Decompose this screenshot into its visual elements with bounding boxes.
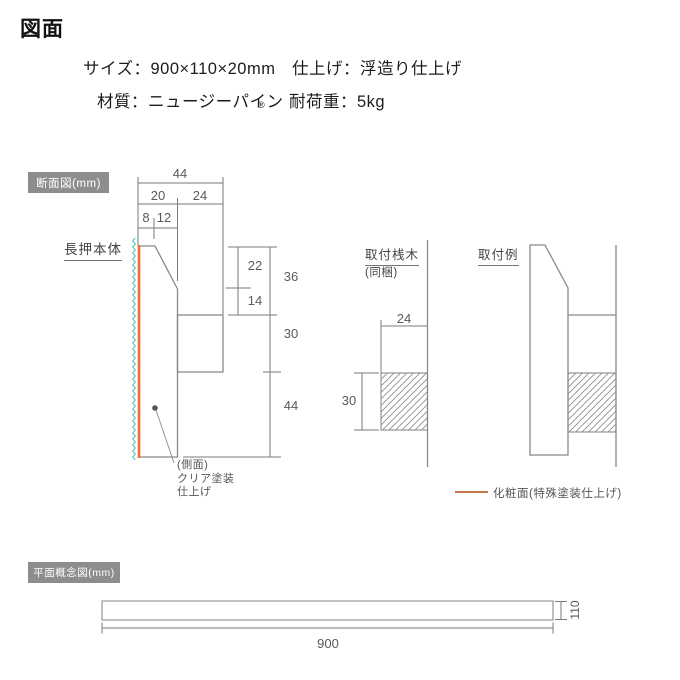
dim-lower: 44	[284, 398, 298, 413]
plan-board-outline	[102, 601, 553, 620]
batten-height-dim: 30	[342, 393, 356, 408]
batten-width-dim: 24	[397, 311, 411, 326]
side-note-line2: クリア塗装	[177, 473, 235, 487]
side-note-line3: 仕上げ	[177, 486, 235, 500]
example-batten-hatched	[568, 373, 616, 432]
example-rail-profile	[530, 245, 568, 455]
cross-section-batten-recess	[178, 315, 224, 372]
side-note-line1: (側面)	[177, 459, 235, 473]
plan-view-diagram	[102, 601, 567, 634]
section-label-plan-view: 平面概念図(mm)	[28, 562, 120, 583]
batten-included-label: (同梱)	[365, 264, 398, 280]
side-note-leader-line	[156, 410, 174, 463]
dim-front-depth: 20	[151, 188, 165, 203]
dim-upper-straight: 14	[248, 293, 262, 308]
spec-finish: 仕上げ：浮造り仕上げ	[292, 55, 462, 79]
side-face-wavy-line	[133, 238, 136, 460]
cross-section-profile	[139, 246, 223, 457]
installation-example-label: 取付例	[478, 244, 519, 266]
plan-width-dim: 110	[568, 600, 582, 619]
batten-label: 取付桟木	[365, 244, 419, 266]
dim-upper-chamfer: 22	[248, 258, 262, 273]
installation-example-diagram	[530, 245, 616, 467]
spec-load: 耐荷重：5kg	[289, 88, 385, 112]
legend-decorative-face-label: 化粧面(特殊塗装仕上げ)	[493, 485, 622, 501]
legend-orange-line	[455, 491, 488, 493]
dim-chamfer-run: 12	[157, 210, 171, 225]
dim-back-depth: 24	[193, 188, 207, 203]
side-face-marker-dot	[152, 405, 158, 411]
batten-hatched-section	[381, 373, 428, 430]
side-finish-note: (側面) クリア塗装 仕上げ	[177, 459, 235, 500]
plan-length-dim: 900	[317, 636, 339, 651]
section-label-cross-section: 断面図(mm)	[28, 172, 109, 193]
dim-middle: 30	[284, 326, 298, 341]
spec-material: 材質：ニュージーパイン	[97, 88, 284, 112]
dim-total-depth: 44	[173, 166, 187, 181]
drawing-page: 図面 サイズ：900×110×20mm 仕上げ：浮造り仕上げ 材質：ニュージーパ…	[0, 0, 680, 680]
spec-size: サイズ：900×110×20mm	[83, 55, 275, 79]
dim-upper-total: 36	[284, 269, 298, 284]
page-title: 図面	[20, 13, 64, 43]
registered-trademark-mark: ®	[258, 100, 265, 110]
dim-top-flat: 8	[142, 210, 149, 225]
rail-body-label: 長押本体	[64, 238, 122, 261]
